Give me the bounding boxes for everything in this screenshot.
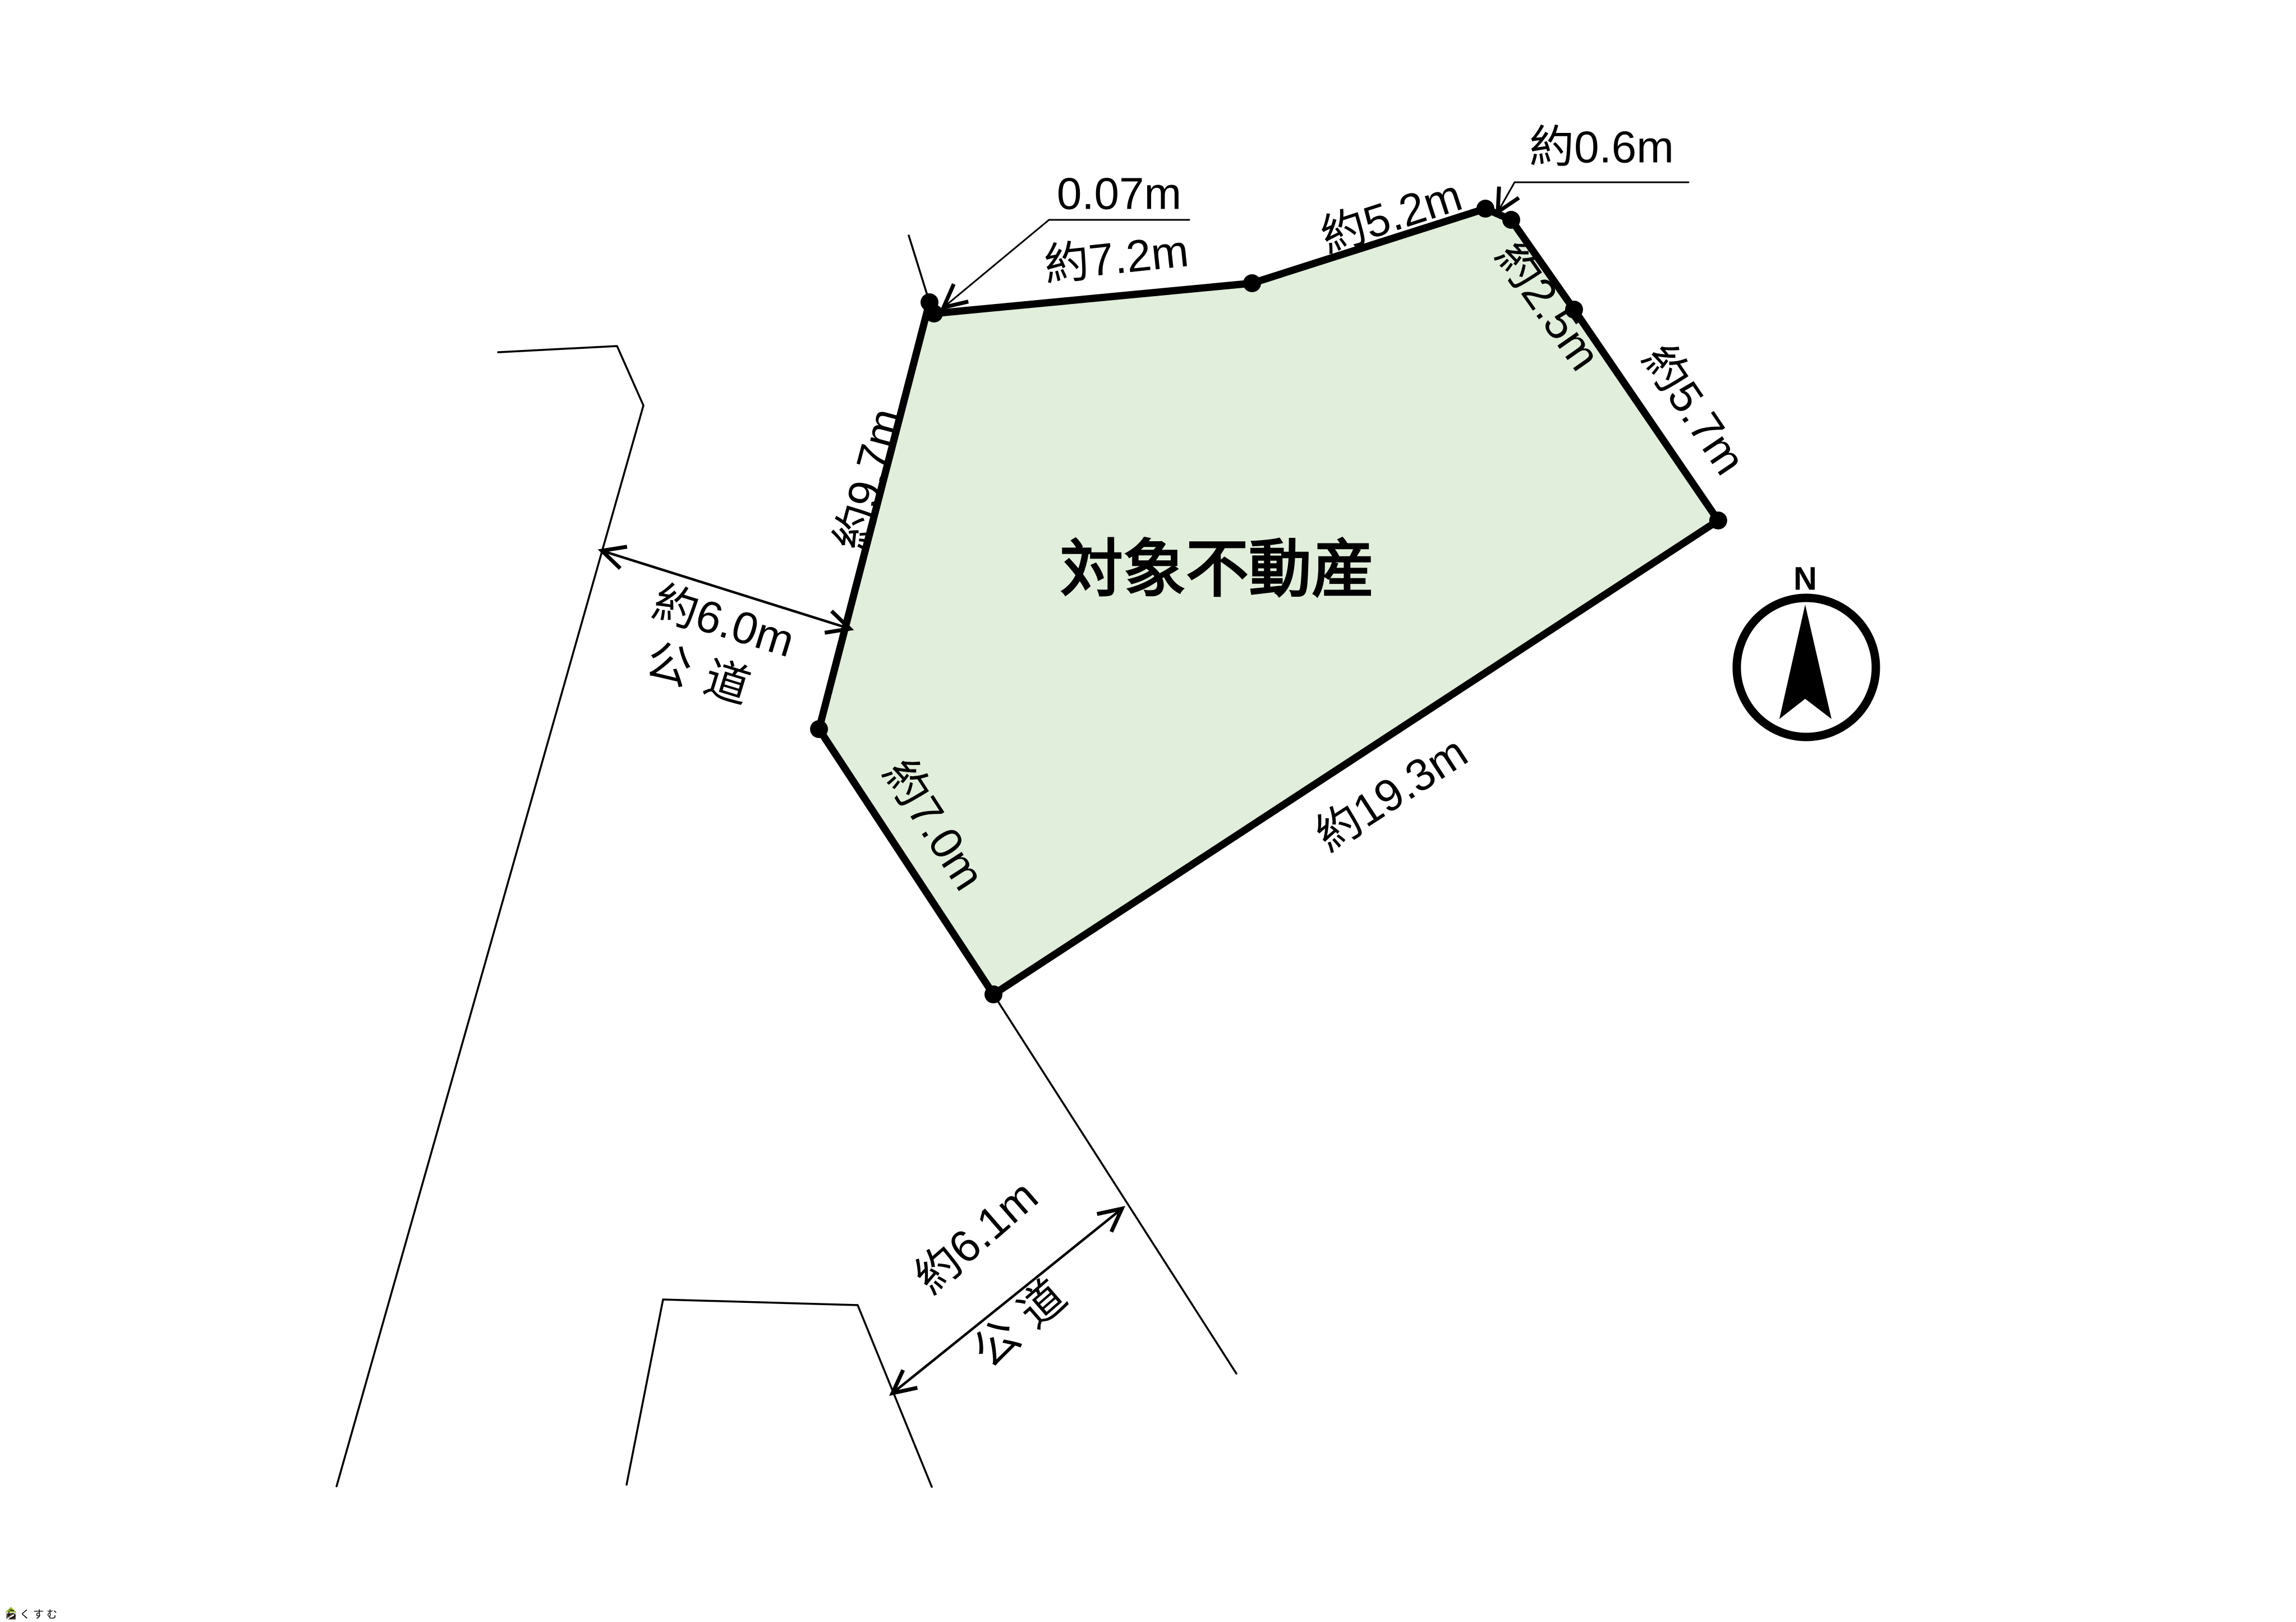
- boundary-dot: [810, 720, 828, 738]
- watermark: らくすむ: [5, 1607, 60, 1621]
- jog-nw-leader-arrow: [944, 220, 1049, 307]
- boundary-dot: [1709, 512, 1727, 529]
- parcel-title: 対象不動産: [1060, 534, 1374, 605]
- neighbor-boundary-northwest: [337, 346, 643, 1486]
- dim-jog-ne: 約0.6m: [1529, 122, 1674, 172]
- road-south-width-label: 約6.1m: [905, 1171, 1047, 1303]
- boundary-stub-above-nw-vertex: [909, 236, 930, 302]
- boundary-dot: [1243, 274, 1261, 292]
- north-label: N: [1793, 561, 1817, 597]
- dim-edge-top-west: 約7.2m: [1042, 225, 1191, 290]
- road-south-type-label: 公道: [963, 1260, 1087, 1377]
- boundary-dot: [925, 305, 943, 322]
- site-plan-canvas: 0.07m 約0.6m 約7.2m 約5.2m 約2.5m 約5.7m 約9.7…: [0, 0, 2296, 1622]
- boundary-dot: [1502, 211, 1520, 229]
- boundary-dot: [984, 985, 1002, 1003]
- boundary-dot: [1476, 200, 1494, 218]
- land-plot-diagram: 0.07m 約0.6m 約7.2m 約5.2m 約2.5m 約5.7m 約9.7…: [0, 0, 2296, 1622]
- jog-ne-leader-arrow: [1498, 182, 1515, 212]
- watermark-text: らくすむ: [6, 1609, 60, 1621]
- neighbor-boundary-south-parcel: [627, 1300, 932, 1487]
- north-arrow-icon: [1779, 605, 1832, 719]
- dim-jog-nw: 0.07m: [1057, 169, 1181, 219]
- north-compass: N: [1737, 561, 1876, 738]
- jog-ne-callout: [1498, 182, 1688, 212]
